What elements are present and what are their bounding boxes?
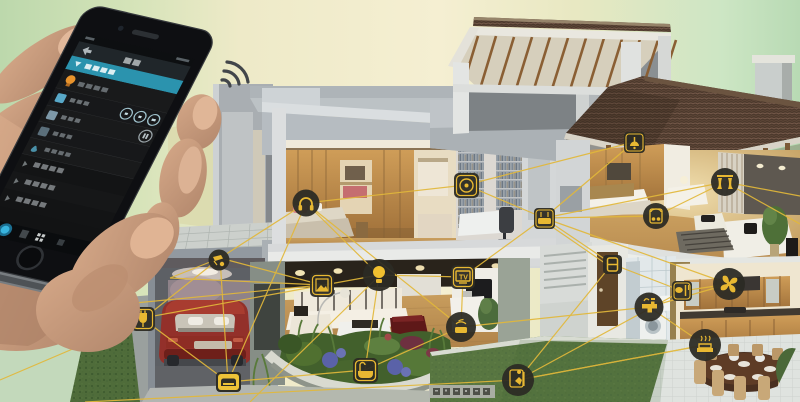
svg-text:TV: TV <box>459 275 468 282</box>
